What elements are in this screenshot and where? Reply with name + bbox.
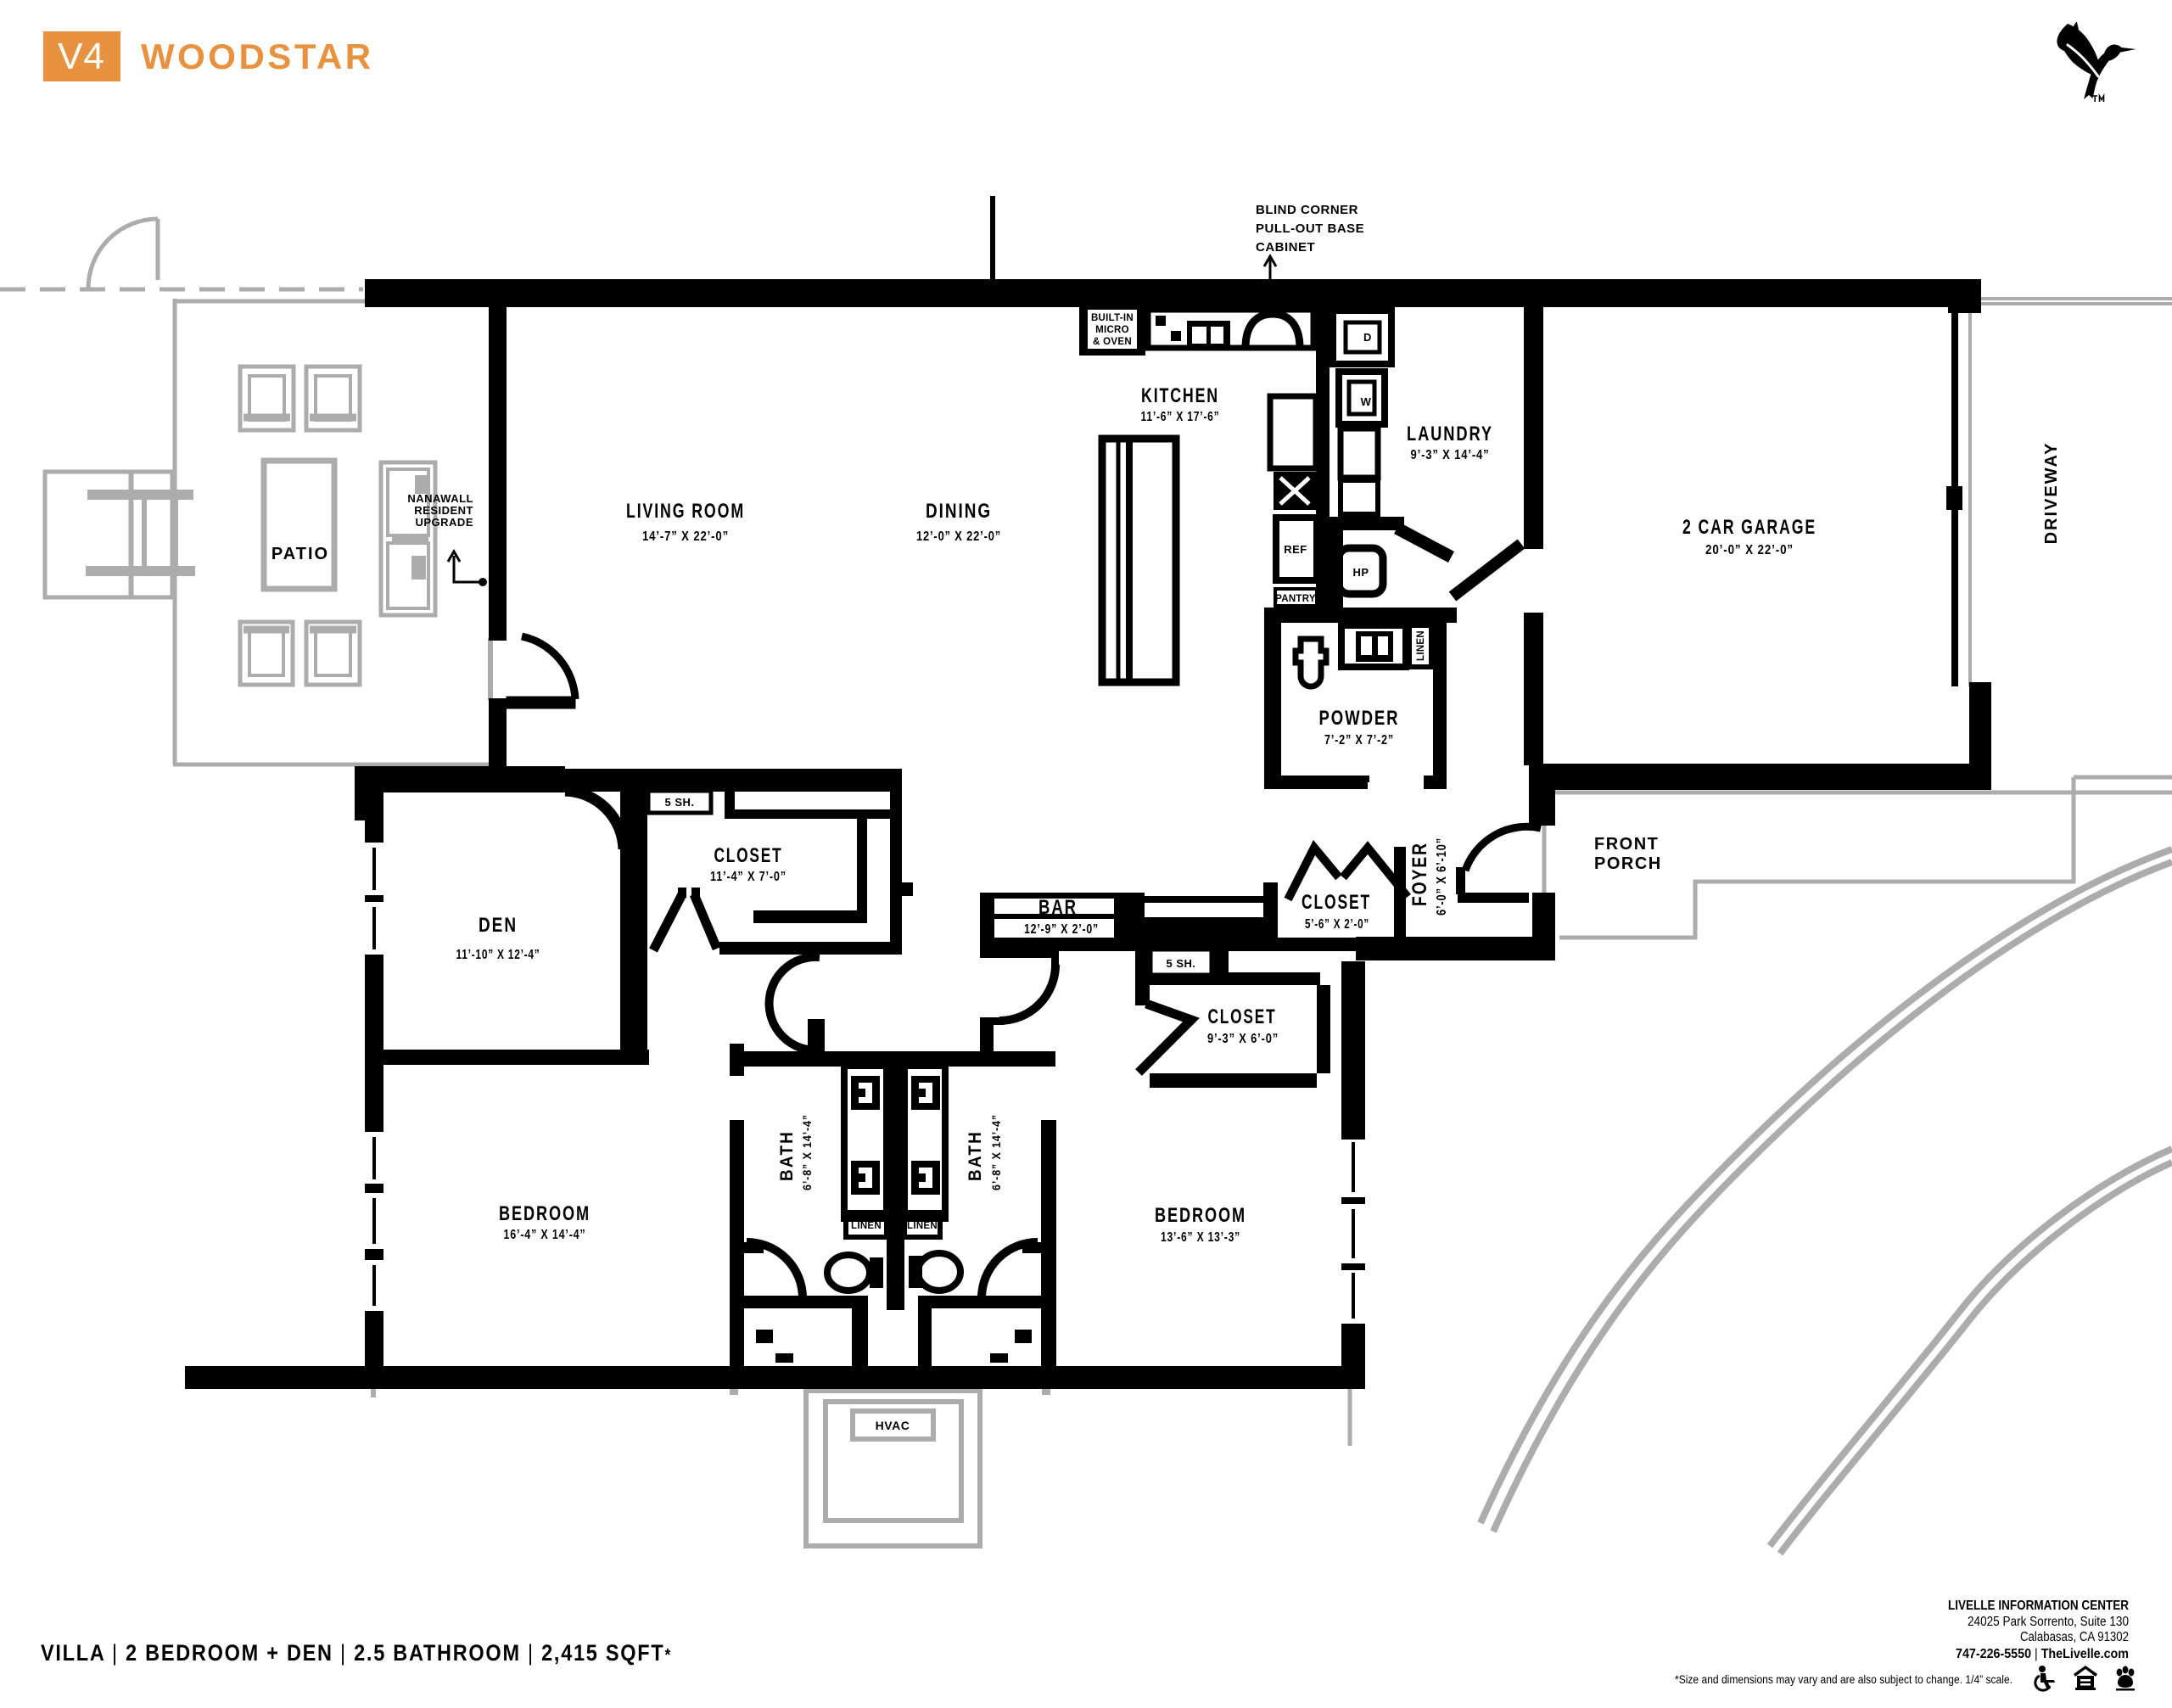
svg-text:& OVEN: & OVEN bbox=[1093, 337, 1132, 347]
svg-text:6’-0” X 6’-10”: 6’-0” X 6’-10” bbox=[1435, 837, 1449, 916]
svg-text:DINING: DINING bbox=[926, 500, 992, 523]
svg-text:POWDER: POWDER bbox=[1319, 707, 1400, 730]
svg-text:9’-3” X 14’-4”: 9’-3” X 14’-4” bbox=[1411, 448, 1490, 462]
svg-text:PANTRY: PANTRY bbox=[1275, 594, 1316, 604]
svg-text:CLOSET: CLOSET bbox=[714, 844, 783, 867]
svg-text:12’-9” X 2’-0”: 12’-9” X 2’-0” bbox=[1024, 922, 1099, 937]
svg-text:12’-0” X 22’-0”: 12’-0” X 22’-0” bbox=[916, 529, 1001, 544]
svg-text:11’-10” X 12’-4”: 11’-10” X 12’-4” bbox=[456, 948, 540, 962]
svg-text:BAR: BAR bbox=[1038, 896, 1078, 919]
svg-text:BEDROOM: BEDROOM bbox=[499, 1202, 591, 1225]
svg-text:BATH: BATH bbox=[777, 1130, 797, 1181]
svg-text:DEN: DEN bbox=[479, 914, 518, 937]
svg-text:UPGRADE: UPGRADE bbox=[415, 516, 473, 529]
svg-text:747-226-5550 | TheLivelle.com: 747-226-5550 | TheLivelle.com bbox=[1956, 1647, 2129, 1661]
svg-text:KITCHEN: KITCHEN bbox=[1141, 384, 1219, 407]
svg-text:2 CAR GARAGE: 2 CAR GARAGE bbox=[1682, 516, 1817, 539]
svg-text:HVAC: HVAC bbox=[876, 1419, 910, 1432]
svg-text:6’-8” X 14’-4”: 6’-8” X 14’-4” bbox=[800, 1114, 814, 1190]
svg-text:FRONT: FRONT bbox=[1594, 835, 1659, 854]
svg-text:MICRO: MICRO bbox=[1095, 325, 1129, 335]
svg-text:BLIND CORNER: BLIND CORNER bbox=[1256, 203, 1358, 217]
svg-text:16’-4” X 14’-4”: 16’-4” X 14’-4” bbox=[504, 1228, 586, 1242]
svg-text:14’-7” X 22’-0”: 14’-7” X 22’-0” bbox=[642, 529, 729, 544]
svg-text:LAUNDRY: LAUNDRY bbox=[1407, 423, 1493, 445]
svg-text:BUILT-IN: BUILT-IN bbox=[1091, 313, 1134, 323]
svg-text:5’-6” X 2’-0”: 5’-6” X 2’-0” bbox=[1305, 917, 1369, 932]
svg-text:CLOSET: CLOSET bbox=[1208, 1005, 1277, 1028]
svg-text:WOODSTAR: WOODSTAR bbox=[141, 36, 374, 76]
svg-text:LINEN: LINEN bbox=[907, 1221, 938, 1231]
svg-text:5 SH.: 5 SH. bbox=[1166, 957, 1195, 970]
svg-text:6’-8” X 14’-4”: 6’-8” X 14’-4” bbox=[989, 1114, 1003, 1190]
svg-text:11’-6” X 17’-6”: 11’-6” X 17’-6” bbox=[1141, 410, 1220, 424]
svg-text:LIVELLE INFORMATION CENTER: LIVELLE INFORMATION CENTER bbox=[1948, 1599, 2129, 1613]
svg-text:LINEN: LINEN bbox=[851, 1221, 882, 1231]
svg-text:Calabasas, CA 91302: Calabasas, CA 91302 bbox=[2020, 1630, 2129, 1644]
svg-text:V4: V4 bbox=[58, 36, 105, 77]
svg-text:PATIO: PATIO bbox=[271, 545, 329, 563]
svg-text:24025 Park Sorrento, Suite 130: 24025 Park Sorrento, Suite 130 bbox=[1968, 1615, 2129, 1629]
svg-text:PORCH: PORCH bbox=[1594, 854, 1662, 873]
svg-text:PULL-OUT BASE: PULL-OUT BASE bbox=[1256, 221, 1364, 236]
svg-text:FOYER: FOYER bbox=[1408, 842, 1431, 906]
svg-text:RESIDENT: RESIDENT bbox=[414, 504, 473, 517]
svg-text:11’-4” X 7’-0”: 11’-4” X 7’-0” bbox=[710, 870, 787, 884]
svg-text:DRIVEWAY: DRIVEWAY bbox=[2042, 442, 2061, 545]
svg-text:HP: HP bbox=[1352, 566, 1369, 579]
svg-text:VILLA | 2 BEDROOM + DEN | 2.5: VILLA | 2 BEDROOM + DEN | 2.5 BATHROOM |… bbox=[41, 1640, 672, 1666]
svg-text:9’-3” X 6’-0”: 9’-3” X 6’-0” bbox=[1207, 1032, 1279, 1046]
svg-text:20’-0” X 22’-0”: 20’-0” X 22’-0” bbox=[1705, 543, 1794, 557]
svg-text:LINEN: LINEN bbox=[1416, 630, 1426, 661]
svg-text:CLOSET: CLOSET bbox=[1302, 891, 1371, 914]
svg-text:5 SH.: 5 SH. bbox=[664, 796, 694, 809]
svg-text:*Size and dimensions may vary: *Size and dimensions may vary and are al… bbox=[1675, 1673, 2012, 1686]
svg-text:LIVING ROOM: LIVING ROOM bbox=[626, 500, 745, 523]
svg-text:13’-6” X 13’-3”: 13’-6” X 13’-3” bbox=[1161, 1230, 1240, 1245]
svg-text:CABINET: CABINET bbox=[1256, 240, 1315, 255]
svg-text:BATH: BATH bbox=[966, 1130, 985, 1181]
svg-text:D: D bbox=[1363, 331, 1372, 344]
svg-text:BEDROOM: BEDROOM bbox=[1155, 1204, 1246, 1227]
svg-text:7’-2” X 7’-2”: 7’-2” X 7’-2” bbox=[1324, 733, 1394, 748]
svg-text:NANAWALL: NANAWALL bbox=[407, 492, 473, 505]
svg-text:REF: REF bbox=[1284, 543, 1307, 556]
svg-text:W: W bbox=[1361, 395, 1372, 408]
